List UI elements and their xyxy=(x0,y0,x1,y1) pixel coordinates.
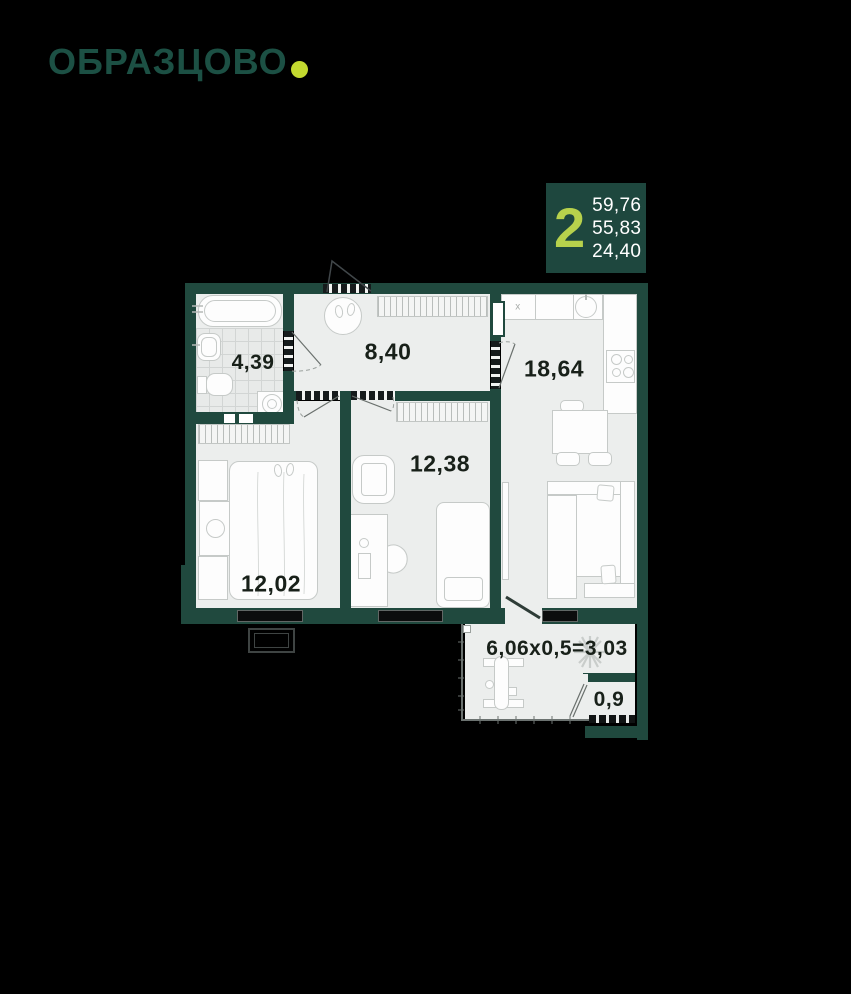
stool xyxy=(588,452,612,466)
dining-table xyxy=(552,410,608,454)
dresser-knob xyxy=(206,519,225,538)
burner xyxy=(612,368,621,377)
badge-areas: 59,76 55,83 24,40 xyxy=(592,194,641,263)
wall-kitchen-left-lower xyxy=(490,389,501,611)
washing-machine-door xyxy=(267,399,277,409)
glazing-hinge xyxy=(463,625,471,633)
entry-rug xyxy=(324,297,362,335)
wall-inset xyxy=(224,414,235,423)
sofa-pillow xyxy=(596,484,614,501)
wall-hallway-bottom-seg xyxy=(395,391,490,401)
wall-hallway-bottom-seg xyxy=(283,391,296,401)
wall-inset xyxy=(239,414,253,423)
badge-area-extra: 24,40 xyxy=(592,240,641,263)
wall-outer-right xyxy=(637,283,648,740)
burner xyxy=(624,355,633,364)
balcony-door-opening xyxy=(505,608,542,624)
bedroom-2-door-leaf xyxy=(351,391,395,400)
balcony-storage-railing xyxy=(589,715,635,723)
stool xyxy=(556,452,580,466)
window-living xyxy=(542,610,578,622)
page: 4,39 8,40 18,64 12,38 12,02 6,06x0,5=3,0… xyxy=(0,0,851,994)
armchair-seat xyxy=(361,463,387,496)
wardrobe-bedroom-1 xyxy=(198,424,290,444)
wardrobe-bedroom-2 xyxy=(396,402,488,422)
bathtub-inner xyxy=(204,300,276,322)
wall-hallway-bottom-seg xyxy=(340,391,351,401)
partition-gap xyxy=(583,674,588,682)
badge-rooms-count: 2 xyxy=(554,200,585,256)
logo-text: ОБРАЗЦОВО xyxy=(48,44,288,80)
nightstand xyxy=(198,556,228,600)
room-label-kitchen-living: 18,64 xyxy=(524,356,584,383)
burner xyxy=(623,367,634,378)
exercise-machine-pedal xyxy=(508,687,517,696)
toilet-bowl xyxy=(206,373,233,396)
entrance-door-leaf xyxy=(323,284,371,293)
room-label-bedroom-2: 12,38 xyxy=(410,451,470,478)
wall-between-bedrooms xyxy=(340,401,351,611)
burner xyxy=(611,354,622,365)
wall-balcony-corner xyxy=(585,726,648,738)
window-bedroom-2 xyxy=(378,610,443,622)
desk-item xyxy=(358,553,371,579)
exercise-machine-body xyxy=(494,656,509,710)
sink-mark: x xyxy=(515,302,521,313)
balcony-glazing-left xyxy=(461,624,463,721)
tv-stand xyxy=(502,482,509,580)
wall-outer-left xyxy=(185,283,196,624)
room-label-hallway: 8,40 xyxy=(365,339,412,366)
sofa-back-side xyxy=(620,481,635,587)
wall-bathroom-right-upper xyxy=(283,294,294,331)
wardrobe-hallway xyxy=(377,296,488,317)
room-label-bedroom-1: 12,02 xyxy=(241,571,301,598)
bed-pillow xyxy=(444,577,483,601)
bedroom-1-door-leaf xyxy=(296,391,340,400)
sofa-armrest xyxy=(584,583,635,598)
badge-area-total: 59,76 xyxy=(592,194,641,217)
counter-divider xyxy=(535,295,536,319)
balcony-glazing-bottom xyxy=(463,719,589,721)
kitchen-door-leaf xyxy=(491,341,500,389)
wall-balcony-partition xyxy=(583,673,635,682)
wall-outer-top xyxy=(185,283,648,294)
desk-lamp xyxy=(359,538,369,548)
logo-dot-icon xyxy=(291,61,308,78)
kitchen-sink xyxy=(575,296,597,318)
room-label-bathroom: 4,39 xyxy=(232,351,275,375)
logo: ОБРАЗЦОВО xyxy=(48,44,308,80)
bathroom-door-leaf xyxy=(284,331,293,371)
area-badge: 2 59,76 55,83 24,40 xyxy=(546,183,646,273)
bathroom-sink-basin xyxy=(201,337,217,357)
room-label-balcony-storage: 0,9 xyxy=(594,688,625,712)
badge-area-living: 55,83 xyxy=(592,217,641,240)
counter-divider xyxy=(573,295,574,319)
room-label-balcony: 6,06x0,5=3,03 xyxy=(486,637,627,661)
exercise-machine-knob xyxy=(485,680,494,689)
window-bedroom-1 xyxy=(237,610,303,622)
sofa-pillow xyxy=(600,564,616,584)
sofa-chaise xyxy=(547,495,577,599)
nightstand xyxy=(198,460,228,501)
ac-unit-inner xyxy=(254,633,289,648)
vent-shaft xyxy=(491,301,505,337)
